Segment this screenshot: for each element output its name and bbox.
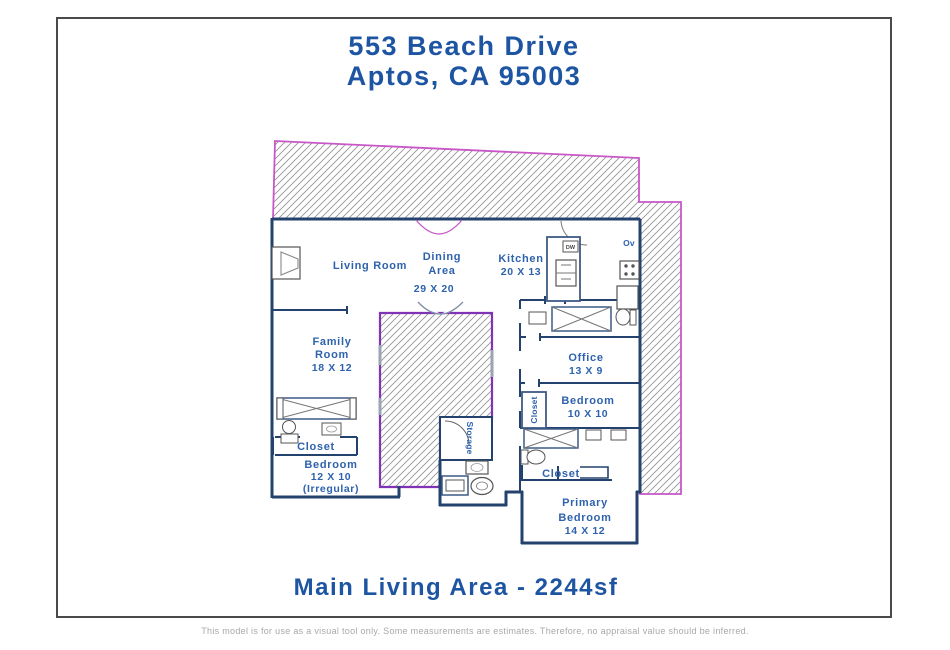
closet-bracket bbox=[580, 467, 608, 478]
toilet-icon bbox=[616, 309, 630, 325]
toilet-tank-icon bbox=[630, 310, 636, 325]
room-dim-family: 18 X 12 bbox=[312, 362, 352, 374]
room-label-primary-1: Primary bbox=[562, 497, 608, 509]
bath-bottom-center bbox=[442, 461, 493, 495]
room-dim-dining: 29 X 20 bbox=[414, 283, 454, 295]
toilet-icon bbox=[527, 450, 545, 464]
label-storage: Storage bbox=[465, 421, 475, 454]
room-label-dining-1: Dining bbox=[423, 251, 461, 263]
label-oven: Ov bbox=[623, 238, 635, 248]
toilet-icon bbox=[471, 478, 493, 495]
room-label-office: Office bbox=[568, 352, 603, 364]
label-closet-right: Closet bbox=[542, 468, 580, 480]
sink-icon bbox=[529, 312, 546, 324]
french-door-deck-icon bbox=[416, 220, 462, 234]
room-dim-kitchen: 20 X 13 bbox=[501, 266, 541, 278]
room-dim-bedroom12: 12 X 10 bbox=[311, 471, 351, 483]
room-dim-bedroom10: 10 X 10 bbox=[568, 408, 608, 420]
room-note-bedroom12: (Irregular) bbox=[303, 483, 359, 495]
room-label-living-room: Living Room bbox=[333, 260, 407, 272]
range-icon bbox=[620, 261, 639, 279]
room-dim-primary: 14 X 12 bbox=[565, 525, 605, 537]
sink-icon bbox=[466, 461, 488, 474]
sink-icon bbox=[322, 423, 341, 435]
room-dim-office: 13 X 9 bbox=[569, 365, 603, 377]
room-label-family-2: Room bbox=[315, 349, 349, 361]
bath-top-right bbox=[529, 307, 636, 331]
room-label-bedroom10: Bedroom bbox=[561, 395, 614, 407]
room-label-primary-2: Bedroom bbox=[558, 512, 611, 524]
sink-icon bbox=[586, 430, 601, 440]
fridge-icon bbox=[617, 286, 638, 309]
toilet-icon bbox=[283, 421, 296, 434]
toilet-tank-icon bbox=[281, 434, 298, 443]
floorplan-svg: Living Room Dining Area 29 X 20 Kitchen … bbox=[0, 0, 950, 650]
label-closet-left: Closet bbox=[297, 441, 335, 453]
room-label-dining-2: Area bbox=[428, 265, 455, 277]
disclaimer-text: This model is for use as a visual tool o… bbox=[0, 626, 950, 636]
room-label-family-1: Family bbox=[312, 336, 351, 348]
label-closet-vertical: Closet bbox=[529, 396, 539, 423]
room-label-kitchen: Kitchen bbox=[498, 253, 543, 265]
sink-icon bbox=[611, 430, 626, 440]
fireplace-icon bbox=[272, 247, 300, 279]
room-label-bedroom12: Bedroom bbox=[304, 459, 357, 471]
main-living-area-label: Main Living Area - 2244sf bbox=[38, 574, 874, 602]
label-dishwasher: DW bbox=[566, 245, 576, 251]
